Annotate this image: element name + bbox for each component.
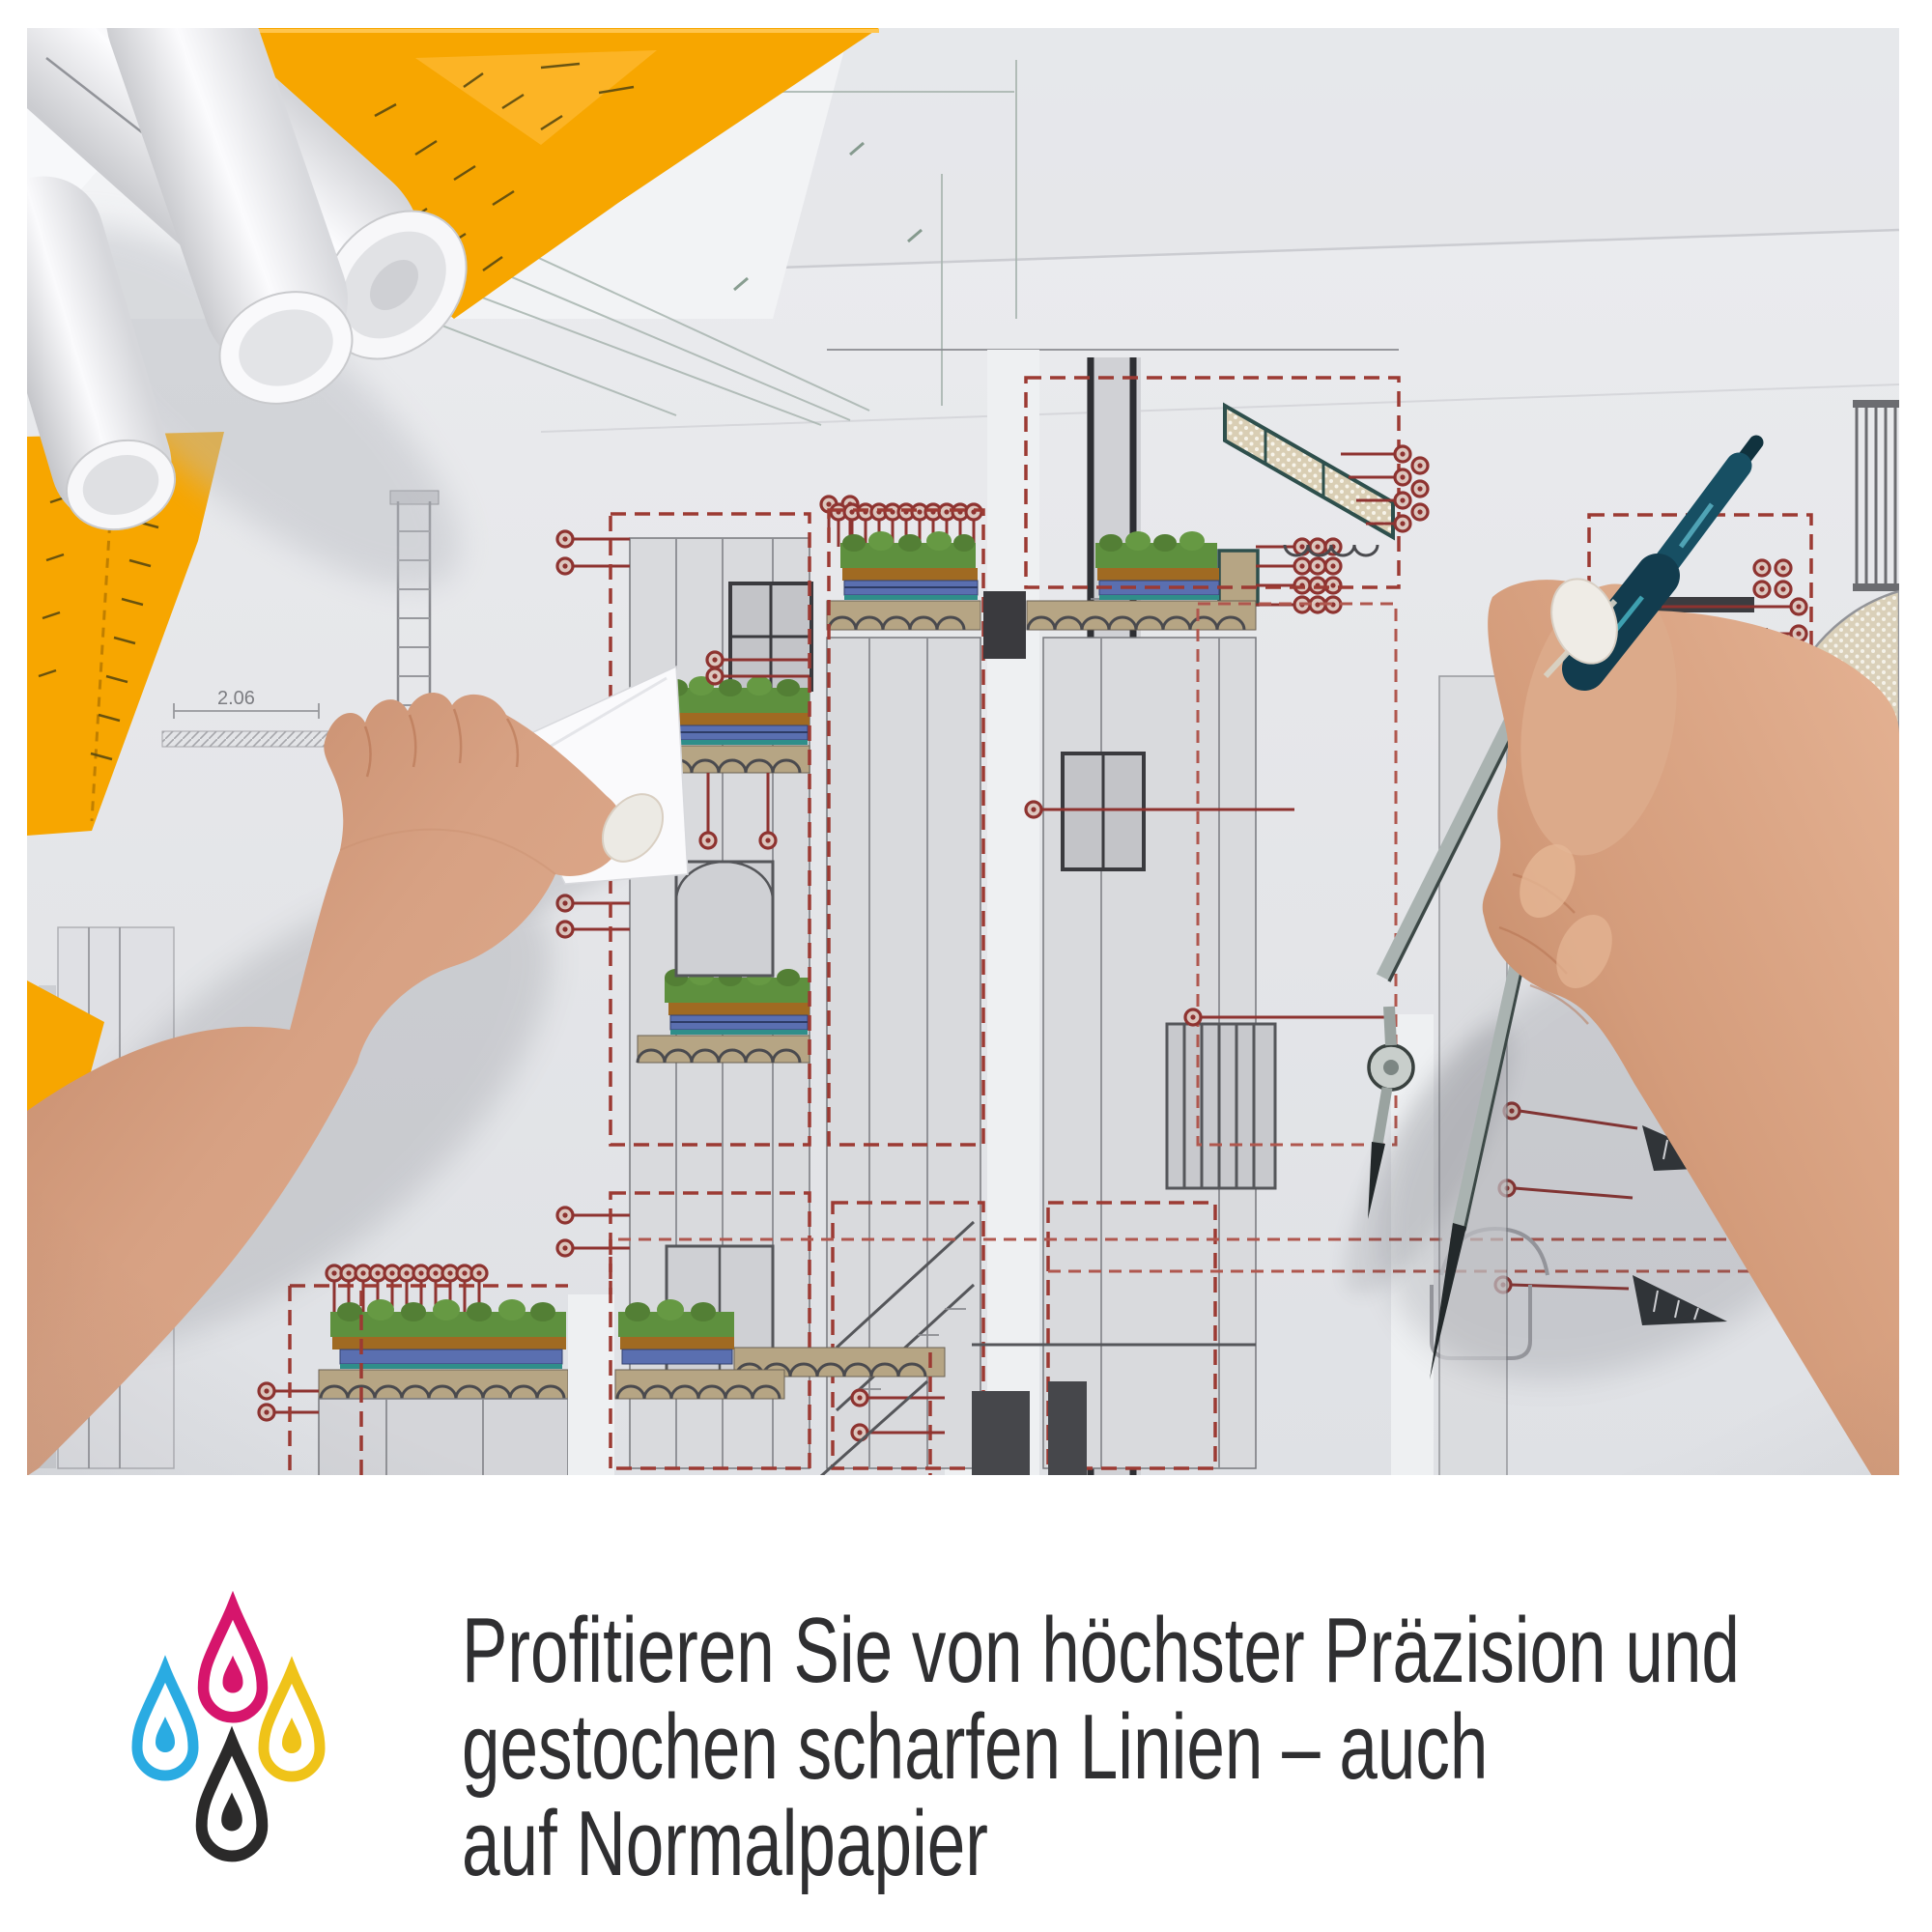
yellow-drop-icon: [264, 1670, 320, 1776]
caption-line-2: gestochen scharfen Linien – auch: [462, 1699, 1740, 1796]
black-drop-icon: [202, 1742, 263, 1857]
photo-vignette: [27, 28, 1899, 1475]
magenta-drop-icon: [204, 1605, 263, 1718]
cmyk-ink-drops-icon: [97, 1575, 377, 1874]
caption-text: Profitieren Sie von höchster Präzision u…: [462, 1603, 1740, 1892]
caption-line-3: auf Normalpapier: [462, 1796, 1740, 1892]
cyan-drop-icon: [137, 1669, 193, 1776]
blueprint-photo: 2.06: [27, 28, 1899, 1475]
product-marketing-page: 2.06: [0, 0, 1932, 1932]
caption-line-1: Profitieren Sie von höchster Präzision u…: [462, 1603, 1740, 1699]
photo-scene: 2.06: [27, 28, 1899, 1475]
